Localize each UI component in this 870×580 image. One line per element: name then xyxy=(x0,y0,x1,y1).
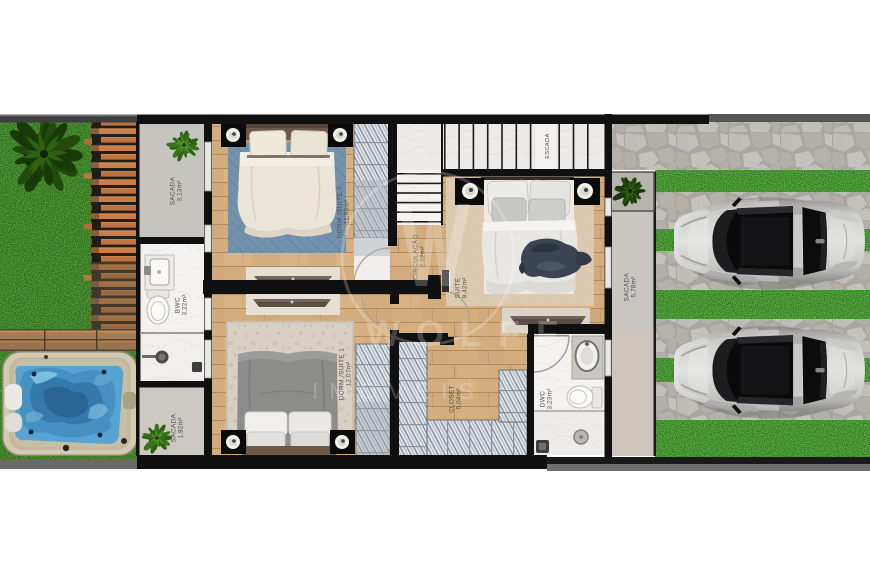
svg-text:SACADA: SACADA xyxy=(170,176,177,205)
svg-text:WOLFF: WOLFF xyxy=(366,313,574,354)
svg-text:3,22m²: 3,22m² xyxy=(182,294,189,315)
svg-text:3,13m²: 3,13m² xyxy=(177,180,184,201)
svg-text:ESCADA: ESCADA xyxy=(545,133,551,158)
svg-text:IMÓVEIS: IMÓVEIS xyxy=(312,378,485,404)
svg-text:SUITE: SUITE xyxy=(455,278,462,299)
svg-text:1,92m²: 1,92m² xyxy=(178,417,185,438)
svg-text:DORM./SUITE 2: DORM./SUITE 2 xyxy=(337,186,344,238)
svg-text:5,78m²: 5,78m² xyxy=(631,276,638,297)
svg-text:SACADA: SACADA xyxy=(624,272,631,301)
svg-text:3,23m²: 3,23m² xyxy=(547,388,554,409)
svg-text:DWC: DWC xyxy=(540,391,547,407)
svg-text:SACADA: SACADA xyxy=(171,413,178,442)
svg-text:9,42m²: 9,42m² xyxy=(462,277,469,298)
svg-text:BWC: BWC xyxy=(175,297,182,313)
